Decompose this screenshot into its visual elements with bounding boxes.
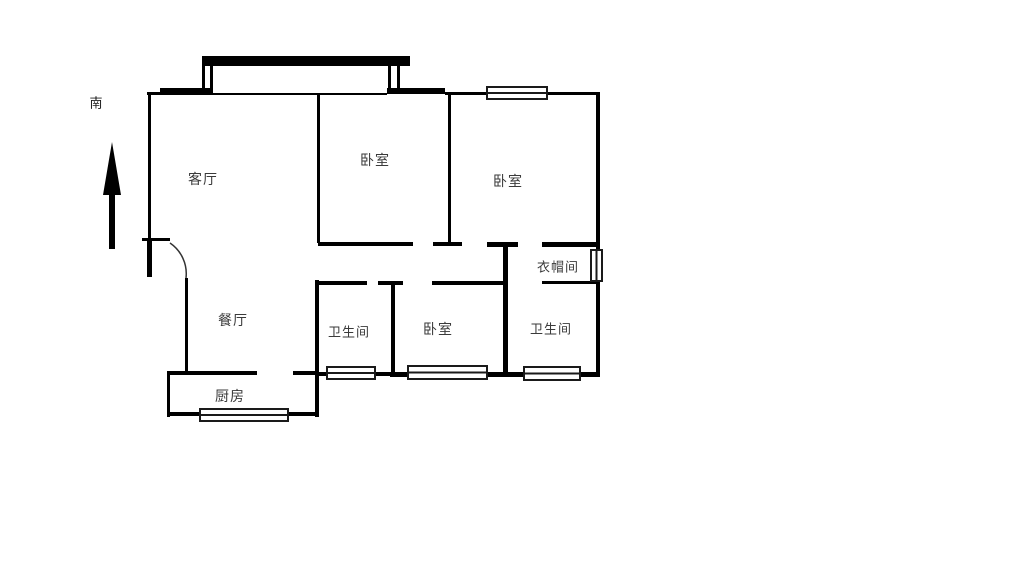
window-kitchen (200, 409, 288, 421)
wall-living-bedroom (317, 93, 320, 243)
wall-hall-top-3 (487, 242, 518, 247)
window-bedroom-right-top (487, 87, 547, 99)
wall-right-exterior (596, 92, 600, 376)
wall-top-thick-left (160, 88, 213, 94)
balcony-post-left-a (202, 64, 205, 93)
entry-door-leaf (147, 241, 152, 277)
wall-hall-top-2 (433, 242, 462, 246)
wall-hall-top-1 (318, 242, 413, 246)
floor-plan-drawing (0, 0, 1024, 579)
wall-bedroom1-bedroom2 (448, 93, 451, 243)
wall-top-thick-right (387, 88, 445, 94)
entry-door-arc (170, 243, 186, 278)
window-bath-right (524, 367, 580, 380)
room-label-bathroom-left: 卫生间 (328, 327, 370, 340)
room-label-bedroom-top: 卧室 (360, 154, 390, 168)
balcony-post-left-b (210, 64, 213, 93)
wall-bath1-left (315, 280, 319, 375)
window-right-wall (591, 250, 602, 281)
wall-bedroom3-top (432, 281, 503, 285)
wall-kitchen-right (315, 371, 319, 417)
wall-hall-top-4 (542, 242, 598, 247)
room-label-living-room: 客厅 (188, 173, 218, 187)
wall-hall-bottom-2 (378, 281, 403, 285)
balcony (202, 56, 410, 93)
room-label-cloakroom: 衣帽间 (537, 262, 579, 275)
room-label-bedroom-right: 卧室 (493, 175, 523, 189)
balcony-outer-wall (202, 56, 410, 66)
compass-south-label: 南 (89, 98, 102, 111)
room-label-bathroom-right: 卫生间 (530, 324, 572, 337)
wall-cloakroom-left (503, 243, 508, 375)
room-label-dining-room: 餐厅 (218, 314, 248, 328)
south-arrow (103, 142, 121, 249)
south-arrow-head (103, 142, 121, 195)
window-bath-left (327, 367, 375, 379)
room-label-kitchen: 厨房 (215, 390, 245, 404)
wall-dining-left (185, 278, 188, 374)
floor-plan: 南 客厅 卧室 卧室 衣帽间 餐厅 卫生间 卧室 卫生间 厨房 (0, 0, 1024, 579)
room-label-bedroom-bottom: 卧室 (423, 323, 453, 337)
wall-kitchen-left (167, 371, 170, 417)
wall-bath1-bedroom (391, 281, 395, 374)
wall-kitchen-top-left (167, 371, 257, 375)
balcony-post-right-a (388, 64, 391, 93)
balcony-post-right-b (397, 64, 400, 93)
window-bedroom-bottom (408, 366, 487, 379)
wall-bath1-top (317, 281, 367, 285)
wall-balcony-inner-line (213, 93, 387, 95)
entry-door-jamb (142, 238, 170, 241)
south-arrow-shaft (109, 190, 115, 249)
wall-left-exterior (148, 92, 151, 242)
windows (200, 87, 602, 421)
wall-cloakroom-bottom (542, 281, 598, 284)
